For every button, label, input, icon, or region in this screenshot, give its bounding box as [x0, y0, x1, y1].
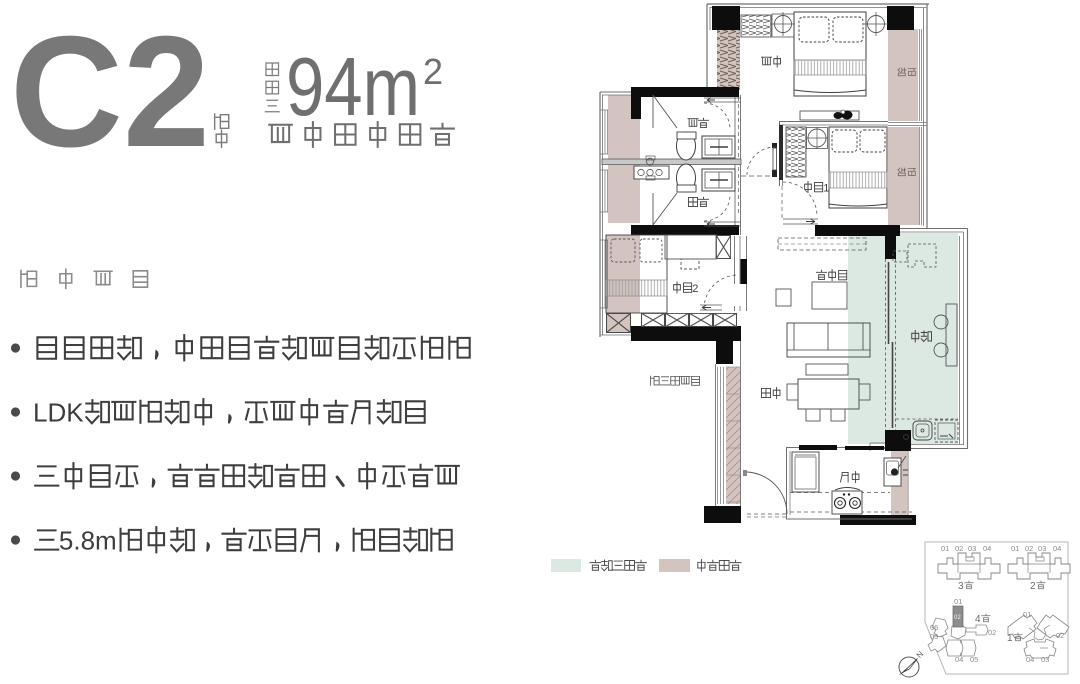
- svg-text:04: 04: [1053, 544, 1061, 553]
- svg-text:03: 03: [1041, 655, 1049, 664]
- svg-text:02: 02: [1025, 544, 1033, 553]
- svg-text:02: 02: [954, 615, 961, 621]
- svg-text:02: 02: [988, 628, 996, 637]
- svg-text:05: 05: [930, 632, 938, 641]
- svg-text:02: 02: [1056, 631, 1064, 640]
- svg-text:03: 03: [968, 544, 976, 553]
- svg-text:94m: 94m: [286, 40, 420, 133]
- svg-text:02: 02: [955, 544, 963, 553]
- svg-text:01: 01: [1023, 610, 1031, 619]
- svg-text:N: N: [915, 649, 926, 660]
- svg-text:C2: C2: [10, 4, 210, 180]
- svg-text:06: 06: [930, 623, 938, 632]
- svg-text:4: 4: [975, 614, 981, 625]
- svg-text:01: 01: [1011, 544, 1019, 553]
- svg-text:2: 2: [1030, 581, 1036, 592]
- svg-text:04: 04: [983, 544, 991, 553]
- svg-text:1: 1: [823, 182, 829, 194]
- svg-text:01: 01: [954, 597, 962, 606]
- svg-text:LDK: LDK: [33, 398, 84, 428]
- svg-text:04: 04: [955, 655, 963, 664]
- svg-text:2: 2: [423, 51, 443, 92]
- svg-text:05: 05: [970, 655, 978, 664]
- svg-text:03: 03: [1038, 544, 1046, 553]
- svg-text:5.8m: 5.8m: [59, 526, 117, 556]
- svg-text:2: 2: [692, 283, 698, 295]
- svg-text:01: 01: [941, 544, 949, 553]
- svg-text:04: 04: [1026, 655, 1034, 664]
- svg-text:1: 1: [1007, 633, 1013, 644]
- svg-text:3: 3: [958, 581, 964, 592]
